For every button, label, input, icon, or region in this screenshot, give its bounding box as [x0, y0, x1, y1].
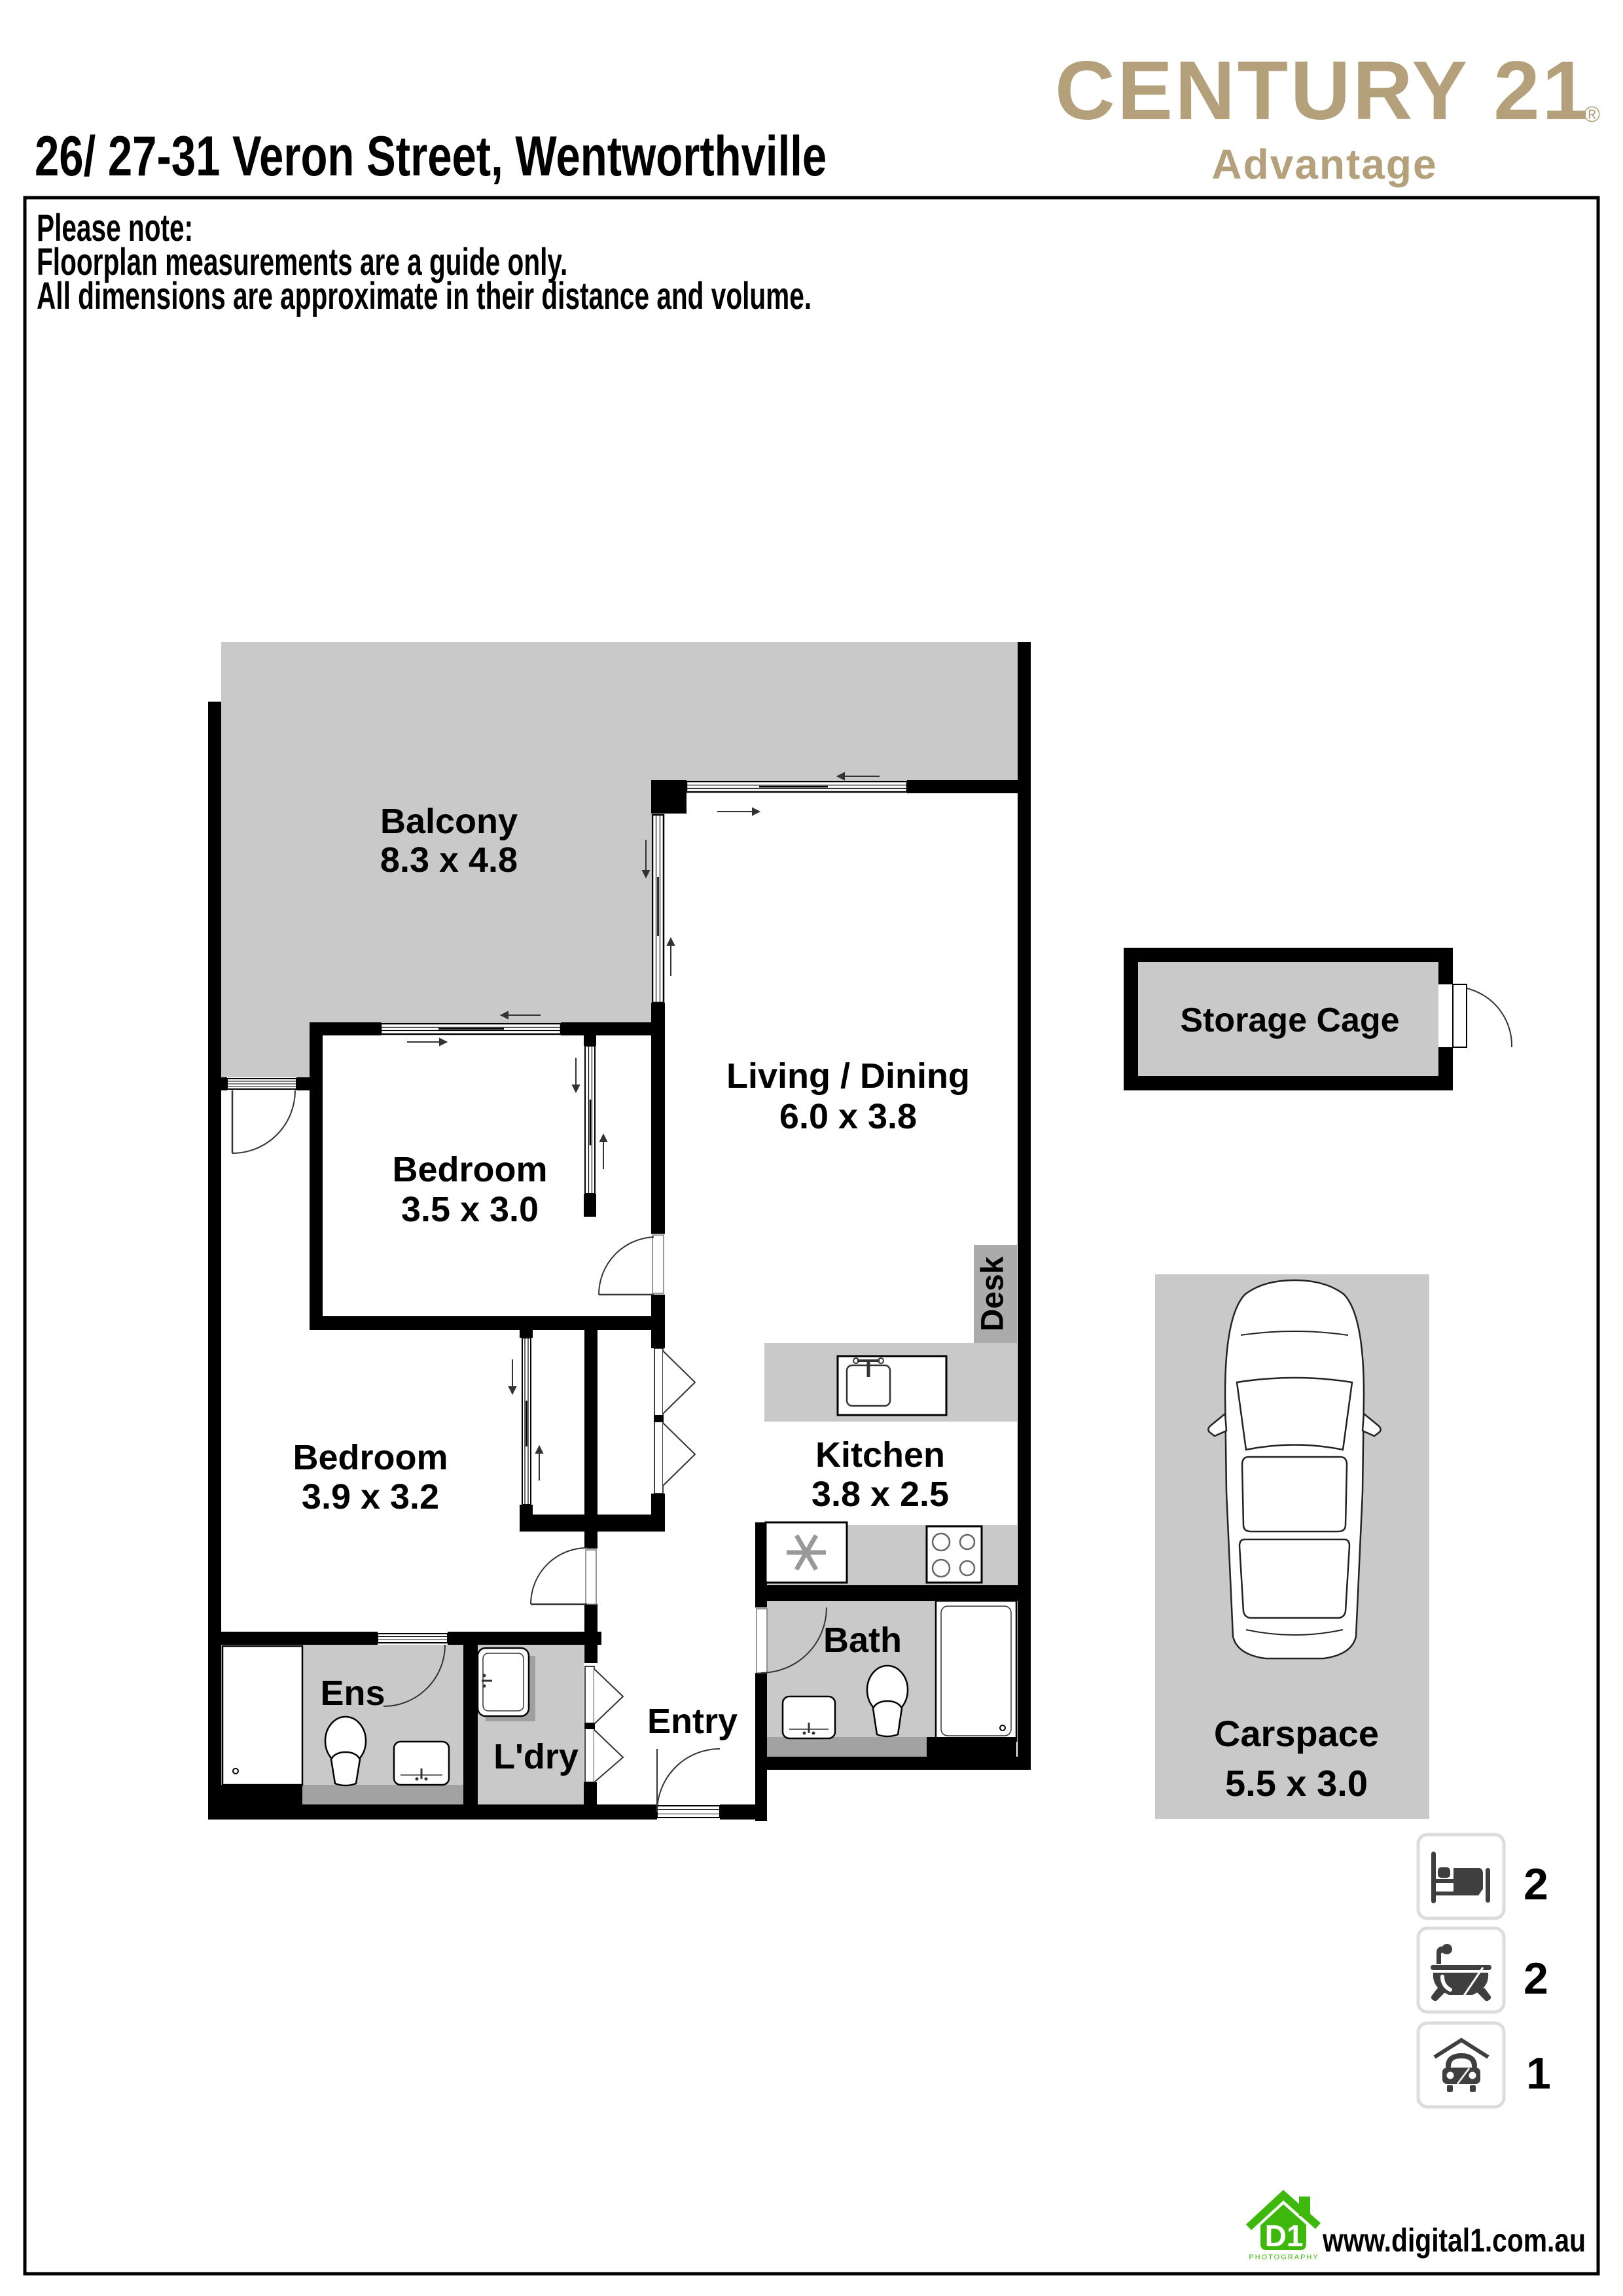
svg-text:Entry: Entry — [647, 1702, 738, 1741]
svg-text:1: 1 — [1526, 2049, 1551, 2098]
svg-text:Bedroom: Bedroom — [392, 1150, 547, 1189]
svg-text:D1: D1 — [1265, 2219, 1304, 2253]
svg-text:Bath: Bath — [823, 1621, 902, 1660]
svg-text:PHOTOGRAPHY: PHOTOGRAPHY — [1249, 2253, 1319, 2261]
svg-text:L'dry: L'dry — [493, 1737, 579, 1776]
svg-text:6.0 x 3.8: 6.0 x 3.8 — [779, 1097, 917, 1136]
svg-text:8.3 x 4.8: 8.3 x 4.8 — [380, 840, 518, 880]
svg-text:®: ® — [1584, 102, 1600, 127]
svg-text:26/ 27-31 Veron Street, Wentwo: 26/ 27-31 Veron Street, Wentworthville — [35, 125, 827, 188]
svg-text:3.5 x 3.0: 3.5 x 3.0 — [401, 1190, 539, 1229]
svg-text:Living / Dining: Living / Dining — [726, 1056, 970, 1096]
svg-text:Storage Cage: Storage Cage — [1180, 1001, 1399, 1039]
svg-text:CENTURY 21: CENTURY 21 — [1055, 44, 1590, 137]
svg-text:www.digital1.com.au: www.digital1.com.au — [1322, 2222, 1586, 2259]
svg-text:Balcony: Balcony — [380, 802, 518, 841]
svg-text:3.8 x 2.5: 3.8 x 2.5 — [811, 1475, 949, 1514]
svg-text:All dimensions are approximate: All dimensions are approximate in their … — [37, 275, 811, 317]
svg-text:Carspace: Carspace — [1214, 1713, 1379, 1754]
svg-text:Advantage: Advantage — [1211, 141, 1437, 188]
svg-text:Bedroom: Bedroom — [293, 1438, 448, 1477]
svg-text:Desk: Desk — [976, 1256, 1010, 1331]
svg-text:2: 2 — [1524, 1954, 1548, 2003]
svg-text:3.9 x 3.2: 3.9 x 3.2 — [302, 1477, 439, 1516]
svg-text:5.5 x 3.0: 5.5 x 3.0 — [1225, 1763, 1368, 1804]
svg-text:2: 2 — [1524, 1859, 1548, 1909]
svg-text:Ens: Ens — [320, 1674, 385, 1713]
svg-text:Kitchen: Kitchen — [815, 1435, 945, 1475]
